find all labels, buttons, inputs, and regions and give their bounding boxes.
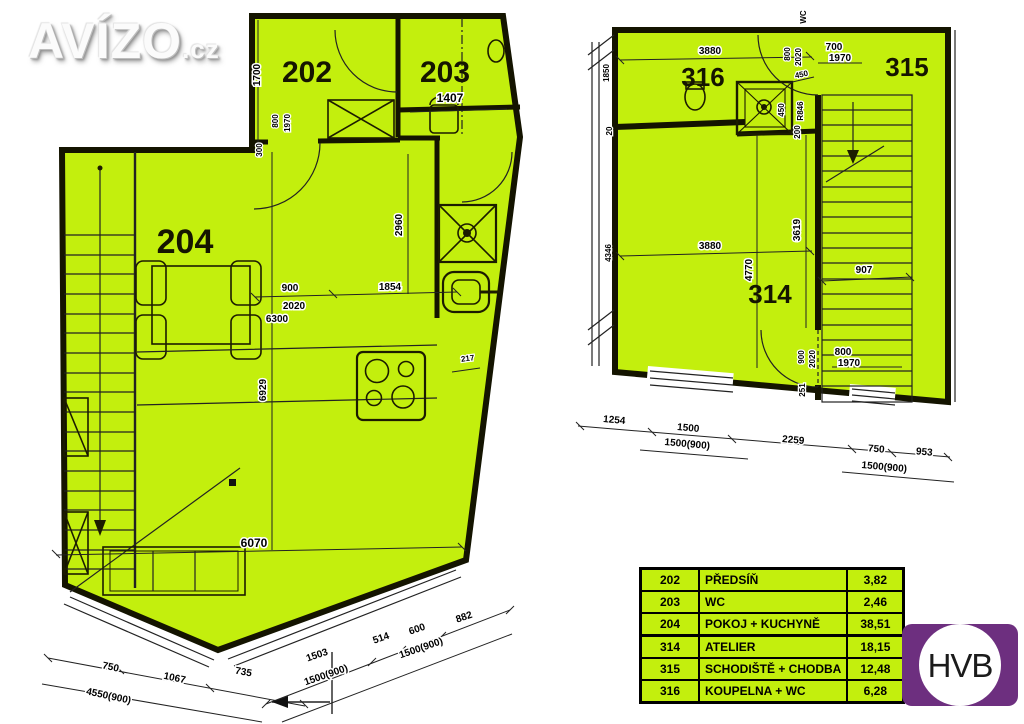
dim-label: 953 — [915, 446, 933, 458]
dim-label: 6300 — [266, 314, 289, 325]
legend-room-area: 12,48 — [847, 658, 904, 680]
dim-label: 900 — [797, 350, 806, 364]
legend-room-area: 6,28 — [847, 680, 904, 703]
dim-label: 4346 — [604, 244, 613, 262]
dim-label: 700 — [826, 42, 843, 53]
dim-label: 450 — [777, 103, 786, 117]
dim-label: 2020 — [283, 301, 306, 312]
legend-room-area: 3,82 — [847, 569, 904, 592]
dim-label: 1500(900) — [664, 437, 710, 452]
room-label-202: 202 — [282, 56, 332, 89]
dim-label: 750 — [867, 443, 885, 455]
room-label-315: 315 — [885, 52, 928, 82]
legend-row: 314 ATELIER 18,15 — [641, 636, 904, 659]
room-label-314: 314 — [748, 279, 792, 309]
dim-label: 2960 — [394, 213, 405, 236]
dim-label: 4770 — [744, 258, 755, 281]
dim-label: 800 — [783, 47, 792, 61]
legend-row: 203 WC 2,46 — [641, 591, 904, 613]
room-label-316: 316 — [681, 62, 724, 92]
dim-label: 2259 — [782, 434, 806, 447]
dim-label: 3880 — [699, 241, 722, 252]
dim-label: 1500(900) — [861, 460, 907, 475]
avizo-logo: AVÍZO.cz — [28, 16, 220, 66]
dim-label: 1503 — [305, 647, 330, 665]
dim-label: 735 — [234, 666, 253, 680]
dim-label: 2020 — [794, 48, 803, 66]
dim-label: 907 — [856, 265, 873, 276]
dim-label: 882 — [455, 610, 475, 626]
legend-room-number: 202 — [641, 569, 700, 592]
legend-room-area: 18,15 — [847, 636, 904, 659]
dim-label: 200 — [793, 125, 802, 139]
dim-label: 300 — [255, 143, 264, 157]
hvb-logo-text: HVB — [928, 647, 993, 684]
dim-label: 3619 — [792, 218, 803, 241]
dim-label: 750 — [101, 660, 120, 674]
dim-label: 251 — [798, 383, 807, 397]
legend-row: 202 PŘEDSÍŇ 3,82 — [641, 569, 904, 592]
dim-label: 1500(900) — [398, 636, 445, 661]
legend-table: 202 PŘEDSÍŇ 3,82 203 WC 2,46 204 POKOJ +… — [639, 567, 905, 704]
dim-label: WC — [799, 10, 808, 24]
right-plan-floor — [615, 30, 948, 402]
room-label-204: 204 — [157, 223, 214, 261]
dim-label: 4550(900) — [85, 686, 132, 706]
legend-room-number: 203 — [641, 591, 700, 613]
legend-room-number: 316 — [641, 680, 700, 703]
legend-row: 204 POKOJ + KUCHYNĚ 38,51 — [641, 613, 904, 636]
legend-row: 315 SCHODIŠTĚ + CHODBA 12,48 — [641, 658, 904, 680]
dim-label: 900 — [282, 283, 299, 294]
right-plan: 316 315 314 3880 1850 WC 800 2020 700 19… — [576, 10, 955, 482]
dim-label: 800 — [271, 114, 280, 128]
dim-label: 2020 — [808, 350, 817, 368]
legend-room-area: 38,51 — [847, 613, 904, 636]
dim-label: 1970 — [829, 53, 852, 64]
dim-label: 514 — [372, 631, 392, 647]
hvb-logo: HVB — [902, 624, 1018, 706]
floor-plan-page: 202 203 204 1700 800 1970 300 1407 2960 … — [0, 0, 1024, 724]
dim-label: 3880 — [699, 46, 722, 57]
dim-label: 1970 — [838, 358, 861, 369]
dim-label: 1254 — [603, 414, 627, 427]
dim-label: 1850 — [602, 64, 611, 82]
dim-label: 600 — [408, 622, 428, 638]
dim-label: 1500(900) — [303, 663, 350, 688]
legend-room-number: 204 — [641, 613, 700, 636]
legend-room-number: 315 — [641, 658, 700, 680]
legend-room-name: POKOJ + KUCHYNĚ — [699, 613, 847, 636]
dim-label: 800 — [835, 347, 852, 358]
dim-label: 1067 — [162, 671, 186, 686]
dim-label: 1700 — [252, 63, 263, 86]
avizo-logo-tld: .cz — [182, 34, 220, 64]
room-label-203: 203 — [420, 56, 470, 89]
dim-label: 6929 — [258, 378, 269, 401]
left-plan: 202 203 204 1700 800 1970 300 1407 2960 … — [42, 16, 520, 722]
dim-label: 1407 — [437, 91, 464, 105]
dim-label: 1500 — [677, 422, 701, 435]
legend-room-name: SCHODIŠTĚ + CHODBA — [699, 658, 847, 680]
legend-room-name: WC — [699, 591, 847, 613]
dim-label: R846 — [796, 101, 805, 121]
dim-label: 217 — [460, 353, 475, 364]
dim-label: 1970 — [283, 114, 292, 132]
legend-row: 316 KOUPELNA + WC 6,28 — [641, 680, 904, 703]
avizo-logo-text: AVÍZO — [28, 13, 182, 69]
legend-room-name: PŘEDSÍŇ — [699, 569, 847, 592]
dim-label: 6070 — [241, 536, 268, 550]
hvb-logo-mark: HVB — [902, 624, 1018, 706]
dim-label: 20 — [605, 126, 614, 135]
legend-room-area: 2,46 — [847, 591, 904, 613]
dim-label: 1854 — [379, 282, 402, 293]
legend-room-name: KOUPELNA + WC — [699, 680, 847, 703]
legend-room-number: 314 — [641, 636, 700, 659]
legend-room-name: ATELIER — [699, 636, 847, 659]
